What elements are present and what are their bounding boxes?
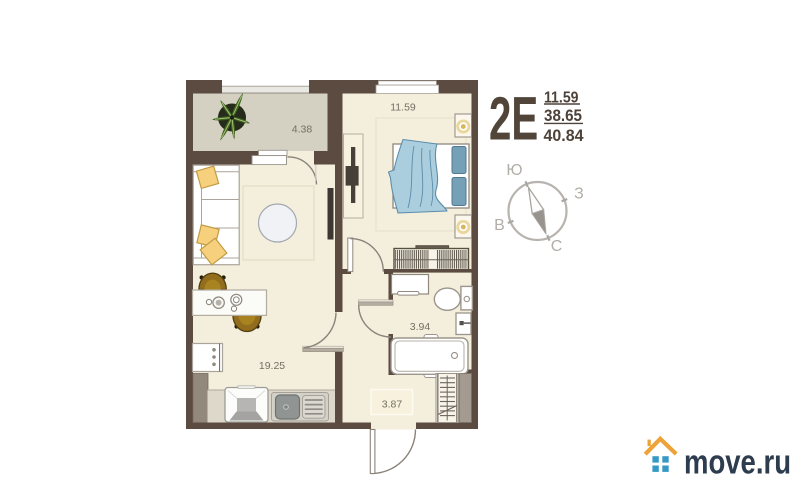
svg-text:3.87: 3.87 xyxy=(382,399,403,411)
svg-text:4.38: 4.38 xyxy=(292,124,313,136)
svg-text:Ю: Ю xyxy=(506,162,522,179)
svg-text:3.94: 3.94 xyxy=(410,321,431,333)
svg-text:С: С xyxy=(551,238,563,255)
svg-text:38.65: 38.65 xyxy=(544,107,582,125)
svg-text:19.25: 19.25 xyxy=(259,360,285,372)
svg-text:З: З xyxy=(574,185,584,202)
svg-text:В: В xyxy=(494,217,505,234)
svg-text:move.ru: move.ru xyxy=(684,444,791,482)
svg-text:40.84: 40.84 xyxy=(544,126,585,145)
svg-text:2Е: 2Е xyxy=(489,85,538,154)
svg-text:11.59: 11.59 xyxy=(390,102,416,114)
